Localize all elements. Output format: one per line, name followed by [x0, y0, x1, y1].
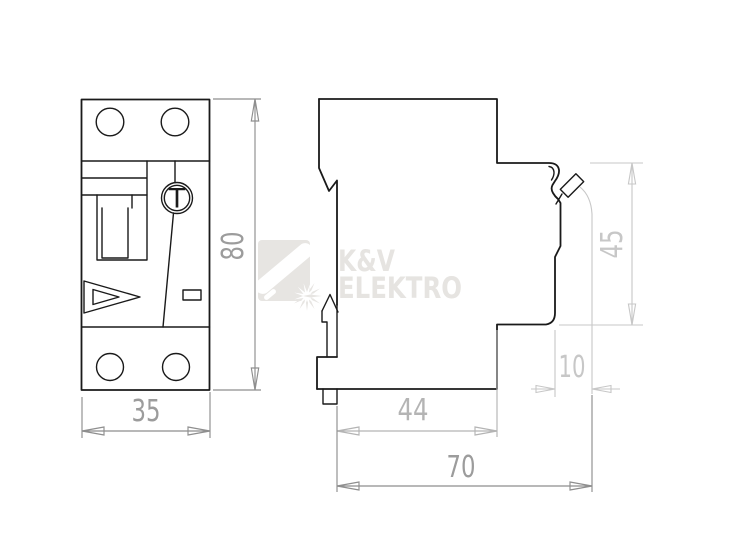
clip-bottom-tab: [323, 389, 337, 404]
front-body-outline: [82, 100, 210, 391]
dimension-label-80: 80: [216, 232, 251, 261]
dimension-label-10: 10: [559, 350, 586, 385]
test-button-label: T: [168, 184, 186, 215]
din-latch: [556, 174, 584, 204]
technical-drawing-canvas: K&V ELEKTRO T: [0, 0, 737, 547]
clip-arrow-head: [322, 295, 338, 313]
dimension-total-depth: 70: [337, 395, 592, 492]
dimension-label-70: 70: [447, 450, 476, 485]
terminal-screw-bottom-right: [163, 354, 190, 381]
toggle-switch: [82, 161, 148, 260]
din-hook-inner-line: [549, 167, 554, 181]
dimension-front-section-height: 45: [559, 163, 643, 325]
dimension-label-35: 35: [132, 394, 161, 429]
dimension-din-offset: 10: [531, 187, 620, 397]
watermark-brand-line2: ELEKTRO: [338, 271, 462, 305]
breaker-dimension-drawing: K&V ELEKTRO T: [0, 0, 737, 547]
test-button: T: [162, 161, 193, 327]
dimension-label-44: 44: [398, 393, 429, 428]
clip-block: [317, 357, 337, 389]
dimension-label-45: 45: [595, 230, 630, 259]
terminal-screw-bottom-left: [97, 354, 124, 381]
test-button-leader-line: [163, 213, 174, 327]
direction-triangle-icon: [84, 281, 140, 313]
side-front-edge: [319, 99, 337, 305]
din-clip: [317, 295, 338, 405]
terminal-screw-top-right: [161, 108, 189, 136]
indicator-window: [183, 290, 201, 300]
brand-logo-icon: [252, 240, 322, 311]
dimension-front-height: 80: [213, 99, 261, 390]
terminal-screw-top-left: [96, 108, 124, 136]
dimension-upper-depth: 44: [337, 330, 497, 437]
watermark: K&V ELEKTRO: [252, 240, 462, 311]
front-view: T: [82, 100, 210, 391]
dimension-front-width: 35: [82, 392, 210, 438]
